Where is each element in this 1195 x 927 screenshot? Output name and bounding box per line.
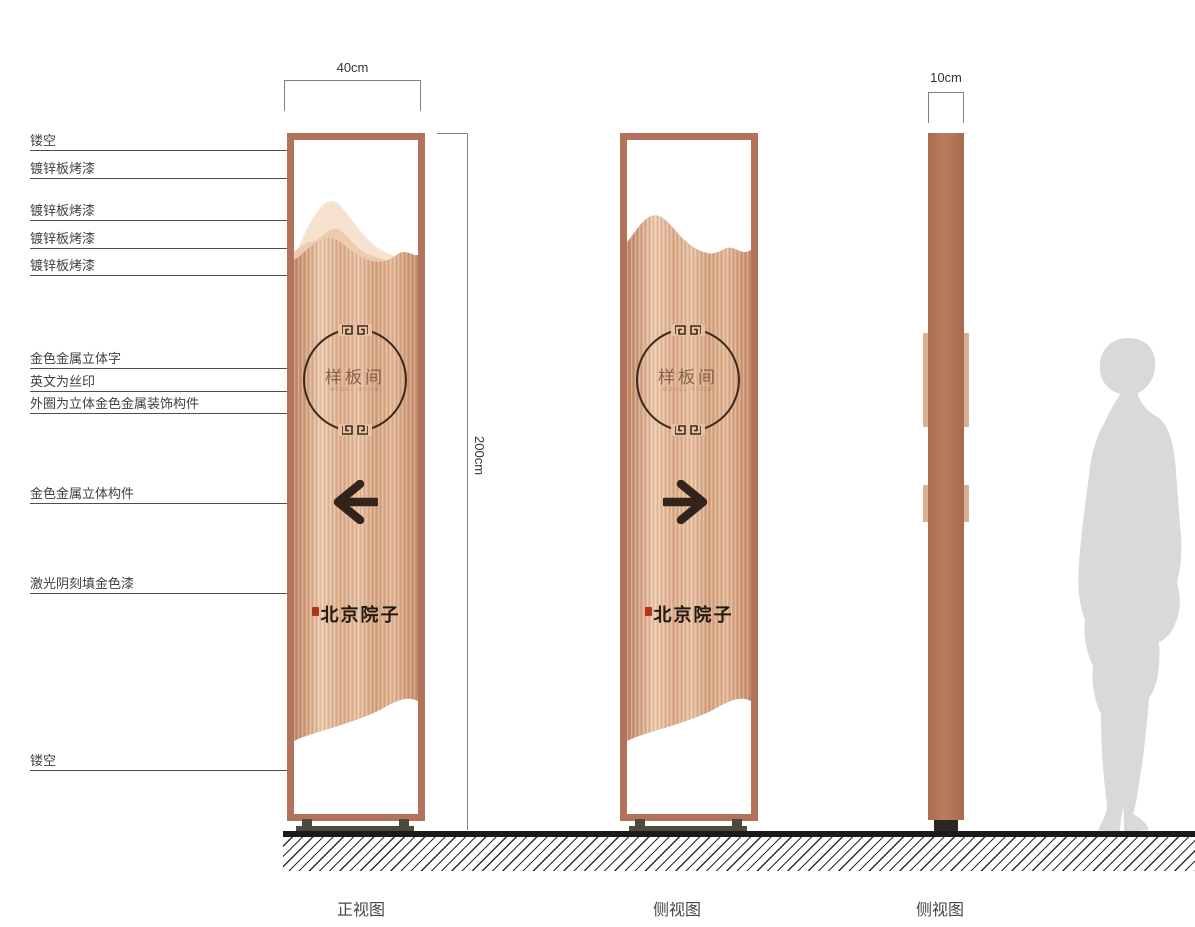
ground-hatch <box>283 837 1195 871</box>
view-title-side: 侧视图 <box>622 896 732 920</box>
annotation-galvanized-mtn3: 镀锌板烤漆 <box>30 259 290 276</box>
sign-side-view: 样板间 MODEL ROOM 北京院子 <box>620 133 758 821</box>
dimension-width-label: 40cm <box>284 60 421 75</box>
dimension-height-line <box>467 133 468 830</box>
room-name-english: MODEL ROOM <box>305 387 405 393</box>
view-title-profile: 侧视图 <box>885 896 995 920</box>
sign-profile-view <box>928 133 964 820</box>
dimension-height-label: 200cm <box>472 436 487 475</box>
fret-ornament-icon <box>338 424 372 436</box>
seal-icon <box>645 607 652 616</box>
dimension-width-bracket <box>284 80 421 111</box>
fret-ornament-icon <box>671 424 705 436</box>
annotation-galvanized-frame: 镀锌板烤漆 <box>30 162 295 179</box>
annotation-gold-ring: 外圈为立体金色金属装饰构件 <box>30 397 318 414</box>
room-name-english: MODEL ROOM <box>638 387 738 393</box>
room-name-text: 样板间 <box>638 363 738 388</box>
ground-line <box>283 831 1195 837</box>
sign-front-panel-art <box>294 140 418 814</box>
sign-side-panel-art <box>627 140 751 814</box>
decorative-ring: 样板间 MODEL ROOM <box>636 328 740 432</box>
arrow-left-icon <box>330 480 378 524</box>
fret-ornament-icon <box>338 324 372 336</box>
seal-icon <box>312 607 319 616</box>
annotation-gold-arrow: 金色金属立体构件 <box>30 487 322 504</box>
panel-brush-texture <box>627 215 751 741</box>
human-silhouette <box>1040 336 1190 838</box>
view-title-front: 正视图 <box>306 896 416 920</box>
signage-design-sheet: 镂空 镀锌板烤漆 镀锌板烤漆 镀锌板烤漆 镀锌板烤漆 金色金属立体字 英文为丝印… <box>0 0 1195 927</box>
dimension-height-connector <box>437 133 467 134</box>
annotation-galvanized-mtn1: 镀锌板烤漆 <box>30 204 288 221</box>
annotation-hollow-top: 镂空 <box>30 134 305 151</box>
fret-ornament-icon <box>671 324 705 336</box>
brand-calligraphy: 北京院子 <box>294 601 418 627</box>
annotation-galvanized-mtn2: 镀锌板烤漆 <box>30 232 287 249</box>
annotation-laser-engraving: 激光阴刻填金色漆 <box>30 577 288 594</box>
brand-text: 北京院子 <box>654 605 734 626</box>
room-name-text: 样板间 <box>305 363 405 388</box>
annotation-hollow-bottom: 镂空 <box>30 754 302 771</box>
dimension-depth-bracket <box>928 92 964 123</box>
arrow-right-icon <box>663 480 711 524</box>
brand-calligraphy: 北京院子 <box>627 601 751 627</box>
annotation-gold-letters: 金色金属立体字 <box>30 352 330 369</box>
dimension-depth-label: 10cm <box>906 70 986 85</box>
decorative-ring: 样板间 MODEL ROOM <box>303 328 407 432</box>
sign-front-view: 样板间 MODEL ROOM 北京院子 <box>287 133 425 821</box>
brand-text: 北京院子 <box>321 605 401 626</box>
